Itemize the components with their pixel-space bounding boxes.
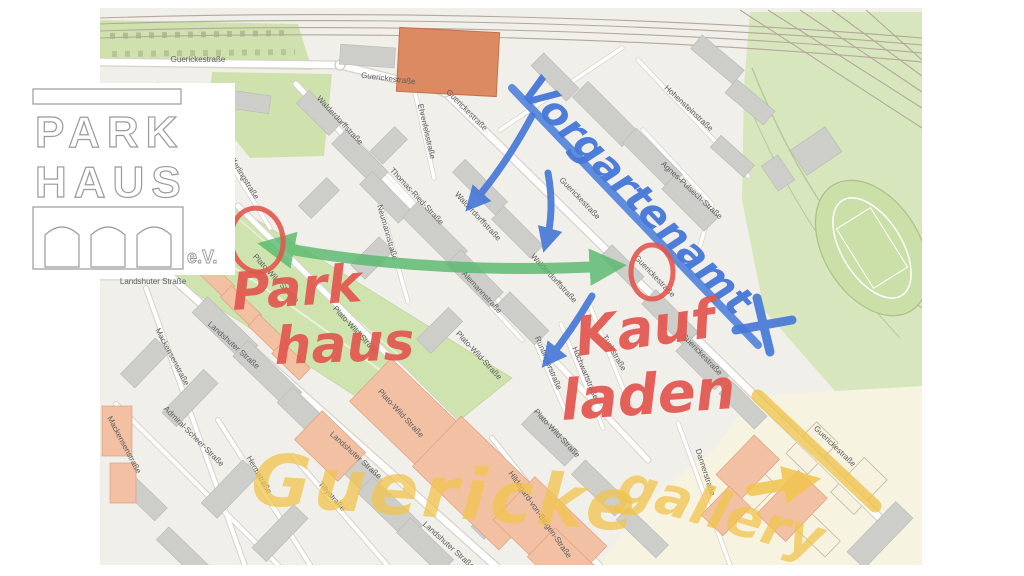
logo-viaduct-icon	[33, 207, 183, 269]
red-handwriting: haus	[273, 312, 415, 377]
flyer-canvas: Guerickestraße Guerickestraße Guerickest…	[0, 0, 1024, 576]
red-handwriting: laden	[558, 357, 737, 434]
logo-roof-bar	[33, 89, 181, 104]
orange-building	[396, 27, 499, 96]
red-handwriting: Park	[230, 254, 367, 323]
street-label: Guerickestraße	[171, 55, 226, 64]
logo-word-park: PARK	[35, 108, 184, 157]
logo-word-haus: HAUS	[35, 158, 188, 207]
parkhaus-logo: PARK HAUS e.V.	[25, 83, 235, 275]
street-label: Landshuter Straße	[120, 277, 187, 286]
logo-ev-suffix: e.V.	[187, 247, 217, 267]
